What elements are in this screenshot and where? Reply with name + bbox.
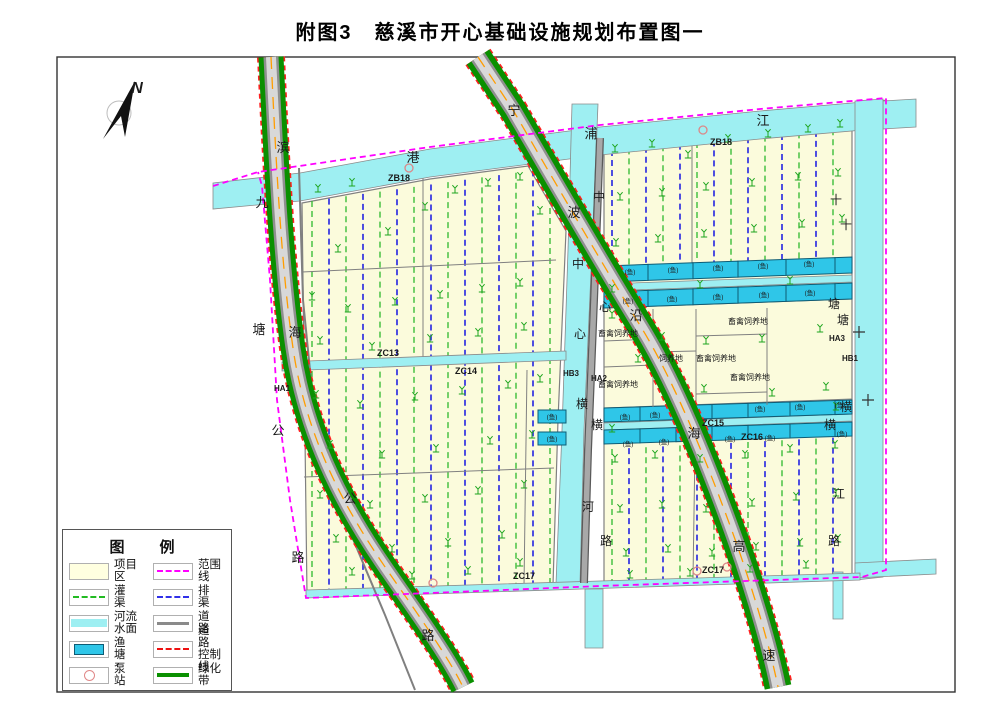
legend: 图 例 项目区灌 渠河流水面渔 塘泵 站 范围线排 渠道 路道 路 控制线绿化带: [62, 529, 232, 691]
control-swatch-icon: [153, 641, 193, 658]
fish-label: (鱼): [667, 294, 678, 303]
river-right: 十: [840, 218, 852, 232]
zone-code: HB3: [563, 369, 580, 378]
river-top-right-stub: [883, 99, 916, 129]
livestock-label: 饲养地: [659, 353, 683, 363]
fish-label: (鱼): [623, 296, 634, 305]
zone-code: HB1: [842, 354, 859, 363]
zone-code: ZC17: [513, 571, 535, 581]
road-center: 路: [600, 533, 612, 548]
fish-label: (鱼): [804, 259, 815, 268]
road-jiutang: 路: [291, 550, 304, 565]
legend-item-label: 项目区: [114, 559, 147, 583]
pond-swatch-icon: [69, 641, 109, 658]
livestock-label: 畜禽饲养地: [730, 372, 770, 382]
legend-item-label: 绿化带: [198, 663, 231, 687]
fish-label: (鱼): [795, 402, 806, 411]
river-stub-v2: [585, 589, 603, 648]
zone-code: ZC13: [377, 348, 399, 358]
road-ningbo-expwy: 沿: [629, 308, 642, 323]
livestock-label: 畜禽饲养地: [598, 379, 638, 389]
road-ningbo-expwy: 宁: [507, 103, 520, 118]
river-right: 江: [833, 487, 845, 501]
road-swatch-icon: [153, 615, 193, 632]
legend-item-drain: 排 渠: [147, 584, 231, 610]
legend-item-control: 道 路 控制线: [147, 636, 231, 662]
legend-item-label: 河流水面: [114, 611, 147, 635]
road-right: 塘: [828, 296, 840, 311]
river-center: 横: [576, 397, 588, 411]
river-top: 港: [406, 150, 419, 165]
legend-left-column: 项目区灌 渠河流水面渔 塘泵 站: [63, 558, 147, 688]
legend-item-project: 项目区: [63, 558, 147, 584]
legend-item-river: 河流水面: [63, 610, 147, 636]
project-swatch-icon: [69, 563, 109, 580]
zone-code: ZC16: [741, 432, 763, 442]
legend-item-label: 排 渠: [198, 585, 231, 609]
fish-label: (鱼): [547, 412, 558, 421]
fish-label: (鱼): [713, 263, 724, 272]
fish-label: (鱼): [759, 290, 770, 299]
road-center: 中: [593, 189, 605, 204]
legend-item-label: 泵 站: [114, 663, 147, 687]
road-ningbo-expwy: 速: [762, 648, 775, 663]
fish-label: (鱼): [805, 288, 816, 297]
fish-label: (鱼): [625, 267, 636, 276]
fish-pond-cell: [835, 257, 852, 274]
legend-item-label: 灌 渠: [114, 585, 147, 609]
legend-item-green: 绿化带: [147, 662, 231, 688]
road-binhai: 公: [343, 491, 356, 506]
fish-label: (鱼): [620, 412, 631, 421]
fish-label: (鱼): [650, 410, 661, 419]
fish-label: (鱼): [725, 434, 736, 443]
road-binhai: 滨: [276, 140, 289, 155]
legend-item-pump: 泵 站: [63, 662, 147, 688]
range-swatch-icon: [153, 563, 193, 580]
river-top: 浦: [584, 126, 597, 141]
green-swatch-icon: [153, 667, 193, 684]
road-jiutang: 公: [271, 423, 284, 438]
legend-item-pond: 渔 塘: [63, 636, 147, 662]
road-binhai: 路: [421, 628, 434, 643]
legend-title: 图 例: [63, 536, 231, 558]
road-center: 心: [599, 300, 611, 314]
legend-item-label: 范围线: [198, 559, 231, 583]
page: 附图3 慈溪市开心基础设施规划布置图一: [0, 0, 1000, 725]
zone-code: ZB18: [388, 173, 410, 183]
road-right: 路: [828, 533, 840, 548]
drain-swatch-icon: [153, 589, 193, 606]
river-top: 江: [756, 113, 769, 128]
road-ningbo-expwy: 波: [567, 205, 580, 220]
fish-label: (鱼): [623, 439, 634, 448]
road-ningbo-expwy: 海: [687, 426, 700, 441]
river-center: 河: [582, 500, 594, 514]
legend-item-range: 范围线: [147, 558, 231, 584]
legend-item-irrigation: 灌 渠: [63, 584, 147, 610]
fish-label: (鱼): [659, 437, 670, 446]
north-label: N: [131, 80, 143, 97]
legend-right-column: 范围线排 渠道 路道 路 控制线绿化带: [147, 558, 231, 688]
fish-label: (鱼): [668, 265, 679, 274]
river-right: 塘: [837, 312, 849, 327]
road-binhai: 海: [288, 325, 301, 340]
road-jiutang: 九: [255, 195, 268, 210]
zone-code: ZC14: [455, 366, 477, 376]
river-center: 心: [574, 327, 586, 341]
fish-label: (鱼): [713, 292, 724, 301]
fish-label: (鱼): [765, 433, 776, 442]
river-swatch-icon: [69, 615, 109, 632]
zone-code: ZC17: [702, 565, 724, 575]
road-ningbo-expwy: 高: [732, 539, 745, 554]
livestock-label: 畜禽饲养地: [696, 353, 736, 363]
livestock-label: 畜禽饲养地: [728, 316, 768, 326]
zone-code: ZC15: [702, 418, 724, 428]
road-center: 横: [591, 418, 603, 432]
irrigation-swatch-icon: [69, 589, 109, 606]
zone-code: ZB18: [710, 137, 732, 147]
livestock-label: 畜禽饲养地: [598, 328, 638, 338]
fish-label: (鱼): [755, 404, 766, 413]
river-center: 中: [572, 256, 584, 271]
zone-code: HA1: [274, 384, 291, 393]
zone-code: HA3: [829, 334, 846, 343]
fish-label: (鱼): [835, 400, 846, 409]
road-right: 横: [824, 418, 836, 432]
river-right-band: [855, 99, 883, 580]
legend-item-label: 渔 塘: [114, 637, 147, 661]
road-right: 十: [830, 193, 842, 207]
fish-label: (鱼): [837, 429, 848, 438]
fish-pond-cell: [712, 403, 748, 418]
road-jiutang: 塘: [252, 322, 265, 337]
pump-swatch-icon: [69, 667, 109, 684]
fish-label: (鱼): [547, 434, 558, 443]
fish-label: (鱼): [758, 261, 769, 270]
